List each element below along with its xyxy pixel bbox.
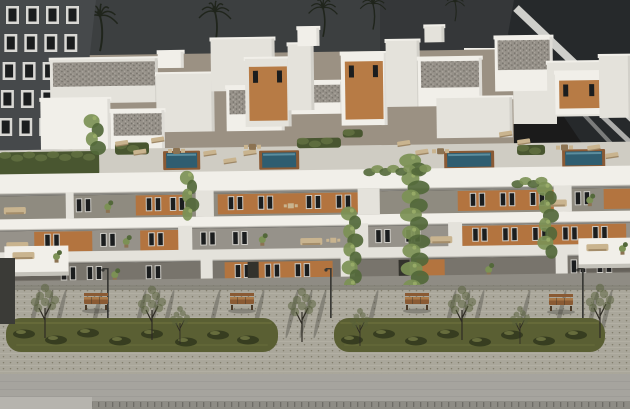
sofa-shade [588, 249, 606, 251]
bench-slat [91, 297, 92, 304]
window-glass [45, 235, 50, 247]
bench-leg [105, 305, 107, 310]
window-glass [47, 37, 55, 50]
tree-canopy [458, 286, 466, 294]
window-glass [238, 197, 243, 209]
gravel-roof [498, 40, 550, 70]
window-glass [531, 193, 536, 205]
window-glass [385, 230, 390, 242]
terrace-table [249, 144, 256, 150]
window-glass [54, 235, 59, 247]
terrace-chair [445, 149, 449, 153]
bench-leg [570, 306, 572, 311]
grass-highlight [340, 322, 599, 324]
balcony-chair [295, 204, 298, 207]
balcony-pier [358, 188, 380, 214]
window-glass [337, 196, 342, 208]
tree-canopy [510, 316, 516, 322]
tree-canopy [350, 318, 356, 324]
window-glass [49, 9, 57, 22]
window-glass [233, 232, 238, 244]
balcony-chair [284, 204, 287, 207]
window-glass [376, 230, 381, 242]
window-glass [563, 84, 568, 96]
tree-canopy [184, 314, 190, 320]
window-glass [480, 194, 485, 206]
tree-canopy [308, 300, 316, 308]
window-glass [22, 121, 30, 134]
bush-highlight [472, 338, 482, 342]
window-glass [268, 197, 273, 209]
lamp-pole [330, 268, 332, 318]
balcony-table [288, 203, 294, 208]
bench-seat-top [230, 297, 254, 300]
building-base-shadow [0, 285, 630, 290]
grass-highlight [344, 344, 595, 346]
gravel-roof [53, 61, 155, 87]
bench-slat [245, 297, 246, 304]
bush-highlight [178, 338, 188, 342]
tree-canopy [51, 296, 59, 304]
window-glass [593, 227, 598, 239]
pool-water-shine [167, 154, 196, 156]
tree-canopy [148, 286, 156, 294]
tree-canopy [31, 298, 39, 306]
plant-pot [55, 260, 59, 263]
tree-canopy [158, 298, 166, 306]
roof-volume [288, 44, 315, 110]
roof-shade [181, 52, 184, 68]
road-line [0, 389, 630, 390]
tree-canopy [596, 284, 604, 292]
sofa-shade [302, 243, 320, 245]
window-glass [253, 71, 258, 83]
window-glass [572, 227, 577, 239]
window-glass [158, 233, 163, 245]
architectural-render [0, 0, 630, 409]
tree-canopy [517, 306, 523, 312]
roof-shade [441, 26, 444, 42]
tree-canopy [41, 284, 49, 292]
tree-canopy [177, 306, 183, 312]
sofa-shade [6, 212, 24, 214]
window-glass [7, 37, 15, 50]
plant-pot [260, 243, 264, 246]
window-glass [316, 196, 321, 208]
dark-edge-structure [0, 258, 15, 324]
lamp-head [324, 268, 327, 271]
orange-wall [604, 189, 630, 209]
window-glass [156, 266, 161, 278]
road [0, 374, 630, 402]
terrace-chair [556, 146, 560, 150]
plant-pot [106, 210, 110, 213]
window-glass [305, 264, 310, 276]
lamp-pole [582, 268, 584, 318]
window-glass [71, 267, 76, 279]
window-glass [5, 65, 13, 78]
window-glass [29, 9, 37, 22]
window-glass [229, 197, 234, 209]
bench-leg [85, 305, 87, 310]
bush-highlight [504, 331, 514, 335]
window-glass [510, 193, 515, 205]
bench-slat [237, 297, 238, 304]
bench-leg [406, 305, 408, 310]
window-glass [147, 198, 152, 210]
sofa-shade [432, 241, 450, 243]
window-glass [602, 227, 607, 239]
tree-canopy [288, 302, 296, 310]
terrace-chair [257, 145, 261, 149]
window-glass [147, 266, 152, 278]
window-glass [346, 196, 351, 208]
tree-canopy [448, 300, 456, 308]
bench-seat-top [549, 298, 573, 301]
window-glass [171, 198, 176, 210]
window-glass [277, 70, 282, 82]
bench-slat [556, 298, 557, 305]
window-glass [473, 229, 478, 241]
lamp-head [101, 268, 104, 271]
roof-volume [599, 56, 630, 118]
balcony-slab-edge [579, 264, 630, 269]
window-glass [296, 264, 301, 276]
window-glass [2, 121, 10, 134]
roof-volume [158, 52, 184, 68]
bush-highlight [568, 331, 578, 335]
bench-slat [412, 297, 413, 304]
window-glass [67, 37, 75, 50]
balcony-chair [326, 239, 329, 242]
tree-canopy [357, 308, 363, 314]
window-glass [97, 267, 102, 279]
window-glass [259, 197, 264, 209]
terrace-chair [569, 145, 573, 149]
lamp-head [576, 268, 579, 271]
bush-highlight [48, 336, 58, 340]
balcony-pier [448, 222, 462, 248]
window-glass [23, 93, 31, 106]
window-glass [307, 196, 312, 208]
balcony-pier [178, 226, 192, 252]
window-glass [149, 233, 154, 245]
road-line [0, 381, 630, 382]
bench-leg [231, 305, 233, 310]
grass-highlight [12, 322, 272, 324]
window-glass [482, 229, 487, 241]
bush-highlight [440, 330, 450, 334]
tree-canopy [524, 314, 530, 320]
terrace-chair [244, 145, 248, 149]
window-glass [373, 65, 378, 77]
window-glass [471, 194, 476, 206]
window-glass [501, 193, 506, 205]
window-glass [572, 260, 577, 272]
window-glass [156, 198, 161, 210]
bench-slat [420, 297, 421, 304]
plant-pot [620, 252, 624, 255]
bush-highlight [408, 337, 418, 341]
bench-leg [550, 306, 552, 311]
window-glass [242, 232, 247, 244]
window-glass [533, 228, 538, 240]
lower-sidewalk [0, 352, 630, 374]
main-building [0, 21, 630, 299]
plant-pot [124, 245, 128, 248]
bush-highlight [16, 330, 26, 334]
roof-volume [297, 28, 319, 46]
balcony-cast-shadow [579, 268, 630, 273]
roof-volume [386, 41, 421, 107]
bench-back [549, 294, 573, 297]
roof-volume [156, 73, 215, 132]
bush-highlight [80, 329, 90, 333]
window-glass [201, 233, 206, 245]
bush-highlight [536, 337, 546, 341]
bush-highlight [210, 331, 220, 335]
terrace-chair [181, 149, 185, 153]
bench-back [230, 293, 254, 296]
terrace-table [437, 148, 444, 154]
bench-back [84, 293, 108, 296]
bench-leg [426, 305, 428, 310]
roof-shade [316, 28, 319, 46]
window-glass [563, 227, 568, 239]
bush-highlight [344, 336, 354, 340]
bench-leg [251, 305, 253, 310]
window-glass [101, 234, 106, 246]
bush-highlight [376, 330, 386, 334]
curb-strip [0, 401, 630, 409]
bush-highlight [240, 336, 250, 340]
window-glass [86, 199, 91, 211]
balcony-table [330, 238, 336, 243]
window-glass [576, 192, 581, 204]
window-glass [69, 9, 77, 22]
plant-pot [588, 203, 592, 206]
terrace-table [173, 148, 180, 154]
window-glass [236, 265, 241, 277]
sofa-shade [14, 257, 32, 259]
window-glass [9, 9, 17, 22]
scene-canvas [0, 0, 630, 409]
window-glass [589, 84, 594, 96]
roof-shade [161, 110, 165, 150]
gravel-roof [421, 61, 479, 88]
balcony-pier [66, 192, 74, 218]
tree-canopy [298, 288, 306, 296]
bench-slat [99, 297, 100, 304]
tree-canopy [138, 300, 146, 308]
bench-seat-top [405, 297, 429, 300]
pavement-patch [0, 397, 92, 409]
window-glass [25, 65, 33, 78]
gravel-roof [113, 113, 161, 136]
bench-slat [564, 298, 565, 305]
window-glass [3, 93, 11, 106]
bench-back [405, 293, 429, 296]
balcony-chair [337, 239, 340, 242]
window-glass [110, 234, 115, 246]
tree-canopy [606, 296, 614, 304]
tree-canopy [170, 316, 176, 322]
window-glass [503, 228, 508, 240]
terrace-chair [168, 149, 172, 153]
window-glass [275, 265, 280, 277]
window-glass [210, 232, 215, 244]
terrace-chair [432, 149, 436, 153]
window-glass [77, 199, 82, 211]
road-line [0, 396, 630, 397]
terrace-table [561, 144, 568, 150]
window-glass [266, 265, 271, 277]
bench-seat-top [84, 297, 108, 300]
tree-canopy [468, 298, 476, 306]
bush-highlight [112, 337, 122, 341]
window-glass [27, 37, 35, 50]
tree-canopy [364, 316, 370, 322]
window-glass [512, 228, 517, 240]
window-glass [88, 267, 93, 279]
window-glass [349, 65, 354, 77]
tree-canopy [586, 298, 594, 306]
